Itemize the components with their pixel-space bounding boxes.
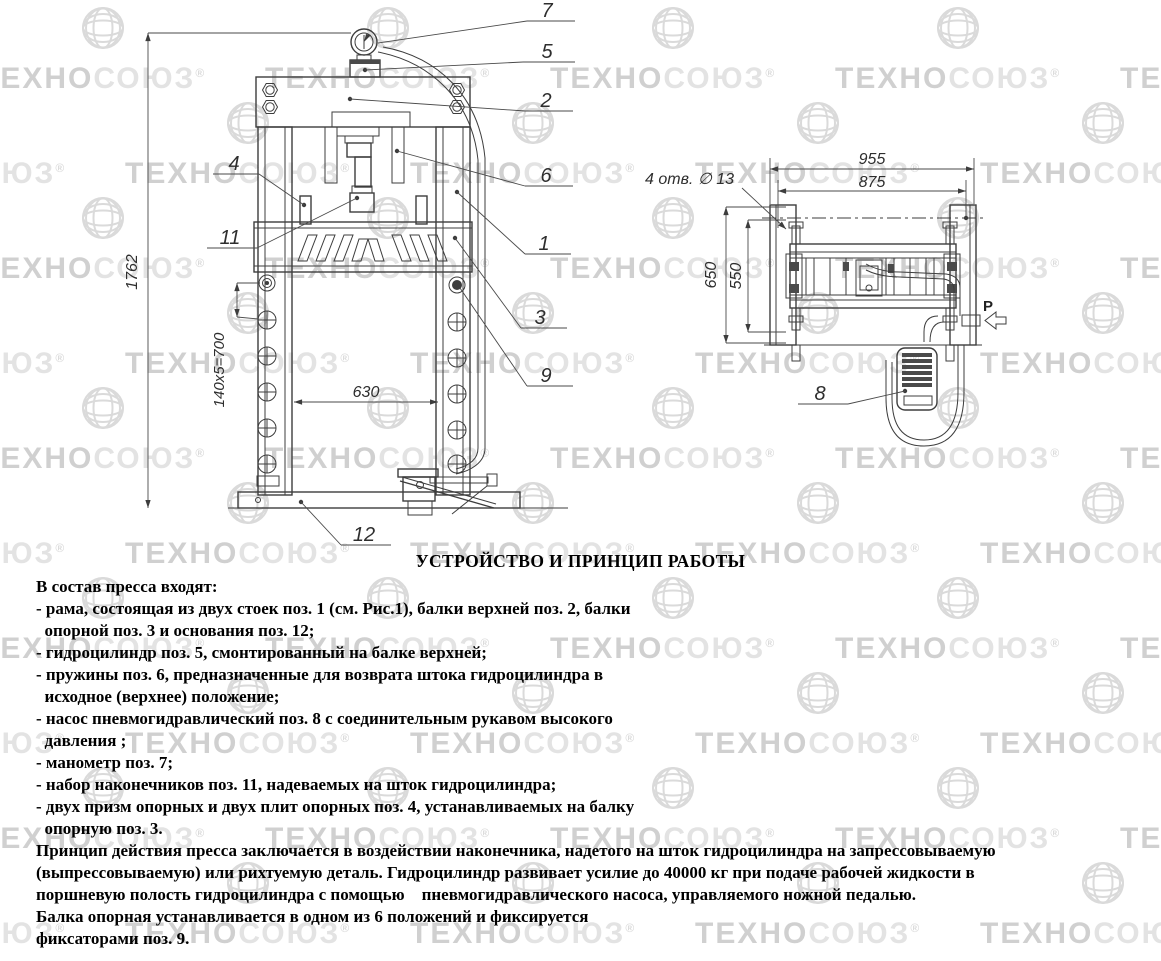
plan-view-drawing: P 955 875 [645,151,1006,446]
svg-text:875: 875 [859,174,886,191]
svg-text:140х5=700: 140х5=700 [211,332,228,407]
front-view-drawing: 1762 140х5=700 630 7 5 2 6 [124,0,575,546]
foot-pedal-pump [886,345,964,446]
section-title: УСТРОЙСТВО И ПРИНЦИП РАБОТЫ [0,551,1161,572]
svg-text:550: 550 [728,263,745,290]
top-beam [256,77,470,127]
plan-hose-air-inlet: P [866,264,1006,342]
dim-height: 1762 [124,33,351,508]
left-column [258,127,292,495]
support-prism-left [300,196,311,224]
column-foot-left [257,476,279,486]
body-line: поршневую полость гидроцилиндра с помощь… [36,884,1158,906]
body-line: - двух призм опорных и двух плит опорных… [36,796,1158,818]
support-prism-right [416,196,427,224]
body-line: Принцип действия пресса заключается в во… [36,840,1158,862]
right-column [436,127,470,495]
body-line: - набор наконечников поз. 11, надеваемых… [36,774,1158,796]
body-line: опорной поз. 3 и основания поз. 12; [36,620,1158,642]
pressure-gauge [351,29,377,60]
body-line: В состав пресса входят: [36,576,1158,598]
body-text: В состав пресса входят: - рама, состояща… [36,576,1158,950]
body-line: - гидроцилиндр поз. 5, смонтированный на… [36,642,1158,664]
return-spring-left [325,127,337,183]
body-line: давления ; [36,730,1158,752]
callout-11: 11 [220,227,241,249]
plan-view-callouts: 8 [798,383,907,405]
return-spring-right [392,127,404,183]
body-line: опорную поз. 3. [36,818,1158,840]
svg-text:4 отв. ∅ 13: 4 отв. ∅ 13 [645,171,734,188]
callout-1: 1 [538,233,549,255]
svg-text:630: 630 [353,384,380,401]
callout-8: 8 [814,383,825,405]
dim-pitch: 140х5=700 [211,283,260,407]
svg-text:1762: 1762 [124,254,141,290]
callout-3: 3 [534,307,545,329]
body-line: - манометр поз. 7; [36,752,1158,774]
body-line: фиксаторами поз. 9. [36,928,1158,950]
document-page: { "watermark": { "brand": "ТЕХНОСОЮЗ", "… [0,0,1161,961]
fixator-pin-left [259,275,275,291]
callout-7: 7 [541,0,553,22]
svg-text:955: 955 [859,151,886,168]
callout-12: 12 [353,524,375,546]
body-line: Балка опорная устанавливается в одном из… [36,906,1158,928]
technical-drawings: 1762 140х5=700 630 7 5 2 6 [0,0,1161,555]
body-line: (выпрессовываемую) или рихтуемую деталь.… [36,862,1158,884]
callout-6: 6 [540,165,552,187]
dim-inner-875: 875 [778,174,966,228]
svg-text:650: 650 [703,262,720,289]
callout-2: 2 [539,90,551,112]
callout-5: 5 [541,41,553,63]
pressure-label: P [983,298,993,315]
body-line: - рама, состоящая из двух стоек поз. 1 (… [36,598,1158,620]
dim-span: 630 [294,384,438,402]
support-beam [254,222,472,272]
dim-depth-inner-550: 550 [728,220,786,332]
beam-assembly [786,222,960,361]
body-line: - насос пневмогидравлический поз. 8 с со… [36,708,1158,730]
callout-4: 4 [228,153,239,175]
callout-9: 9 [540,365,551,387]
body-line: - пружины поз. 6, предназначенные для во… [36,664,1158,686]
body-line: исходное (верхнее) положение; [36,686,1158,708]
